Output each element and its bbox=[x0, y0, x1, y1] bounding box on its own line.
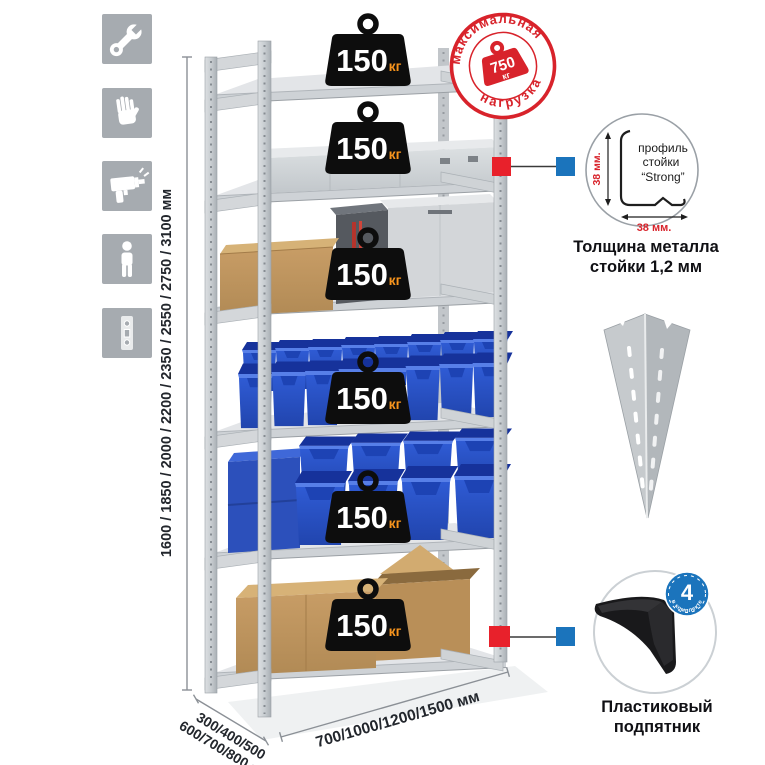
rack-post-outer-left bbox=[205, 57, 217, 693]
rack-post-inner-left bbox=[258, 41, 271, 717]
drill-icon bbox=[102, 161, 152, 211]
shelf-load-badge-2 bbox=[325, 104, 411, 174]
corner-post-image bbox=[604, 314, 690, 518]
profile-caption-1: Толщина металла bbox=[573, 238, 719, 256]
profile-label-3: “Strong” bbox=[641, 170, 684, 184]
profile-caption-2: стойки 1,2 мм bbox=[590, 258, 702, 276]
profile-label-2: стойки bbox=[643, 155, 680, 169]
max-load-stamp: максимальная нагрузка 750 кг bbox=[437, 0, 568, 131]
blue-marker bbox=[556, 157, 575, 176]
red-marker bbox=[492, 157, 511, 176]
profile-detail: 38 мм. 38 мм. профиль стойки “Strong” То… bbox=[573, 114, 719, 276]
rack-post-front-right bbox=[494, 66, 507, 662]
blue-marker bbox=[556, 627, 575, 646]
foot-callout-connector bbox=[489, 626, 575, 647]
profile-dim-horizontal: 38 мм. bbox=[637, 222, 672, 234]
person-icon bbox=[102, 234, 152, 284]
profile-label-1: профиль bbox=[638, 141, 688, 155]
foot-caption-2: подпятник bbox=[614, 718, 701, 736]
red-marker bbox=[489, 626, 510, 647]
product-infographic: 150 кг bbox=[0, 0, 765, 765]
kit-count-badge: 4 в комплекте bbox=[665, 572, 709, 616]
illustration-canvas: 150 кг bbox=[0, 0, 765, 765]
height-dimension: 1600 / 1850 / 2000 / 2200 / 2350 / 2550 … bbox=[159, 57, 192, 690]
height-dim-label: 1600 / 1850 / 2000 / 2200 / 2350 / 2550 … bbox=[159, 189, 175, 557]
kit-count-number: 4 bbox=[681, 580, 694, 605]
gloves-icon bbox=[102, 88, 152, 138]
plastic-foot: 4 в комплекте Пластиковый подпятник bbox=[594, 571, 716, 736]
perforated-post-icon bbox=[102, 308, 152, 358]
foot-caption-1: Пластиковый bbox=[601, 698, 712, 716]
wrench-icon bbox=[102, 14, 152, 64]
shelf-load-badge-1 bbox=[325, 16, 411, 86]
profile-callout-connector bbox=[492, 157, 575, 176]
assembly-icon-column bbox=[102, 14, 152, 358]
shelving-rack bbox=[205, 16, 513, 717]
profile-dim-vertical: 38 мм. bbox=[591, 152, 603, 185]
